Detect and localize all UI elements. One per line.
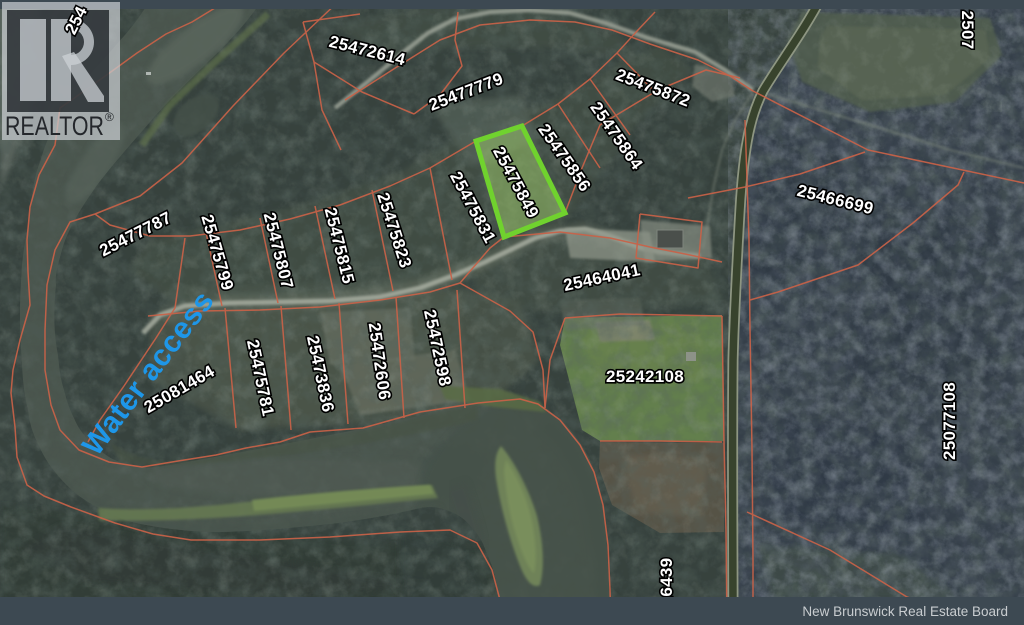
- svg-text:25242108: 25242108: [606, 367, 684, 386]
- svg-text:REALTOR: REALTOR: [5, 111, 104, 141]
- svg-text:®: ®: [105, 110, 114, 124]
- svg-text:25077108: 25077108: [940, 382, 959, 460]
- svg-text:New Brunswick Real Estate Boar: New Brunswick Real Estate Board: [802, 604, 1008, 619]
- svg-text:2507: 2507: [958, 10, 977, 49]
